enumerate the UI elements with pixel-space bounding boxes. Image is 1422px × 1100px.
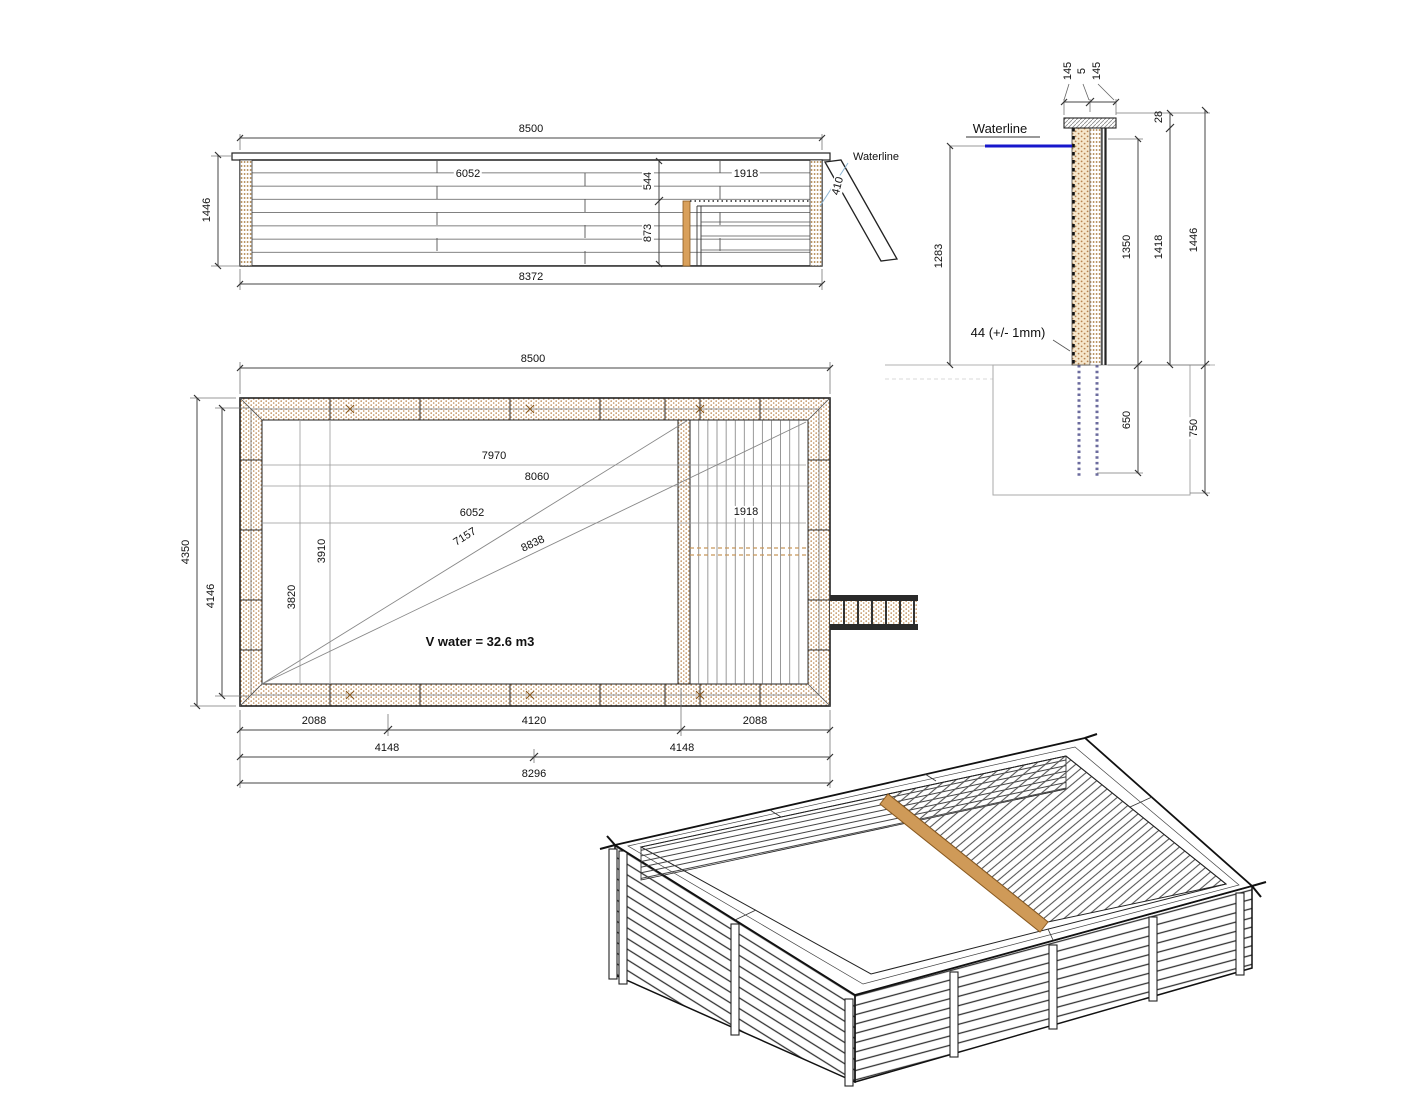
plan-view: [190, 362, 918, 788]
plan-dim-3910: 3910: [316, 537, 328, 565]
plan-dim-deck: 1918: [732, 506, 760, 518]
plan-volume-label: V water = 32.6 m3: [426, 635, 535, 649]
elevation-waterline-label: Waterline: [853, 151, 899, 163]
section-dim-inner-height: 1350: [1121, 233, 1133, 261]
plan-dim-2088-left: 2088: [302, 715, 326, 727]
elevation-view: [211, 134, 897, 290]
plan-dim-6052: 6052: [458, 507, 486, 519]
iso-view: [600, 734, 1266, 1086]
plan-dim-2088-right: 2088: [743, 715, 767, 727]
plan-dim-3820: 3820: [286, 583, 298, 611]
pool-technical-drawing: 8500 1446 8372 6052 544 1918 873 410 Wat…: [0, 0, 1422, 1100]
plan-dim-top: 8500: [521, 353, 545, 365]
elevation-dim-top: 8500: [519, 123, 543, 135]
plan-dim-4120: 4120: [522, 715, 546, 727]
plan-dim-8296: 8296: [522, 768, 546, 780]
section-dim-underground: 650: [1121, 409, 1133, 431]
elevation-dim-deck-length: 1918: [732, 168, 760, 180]
plan-dim-8060: 8060: [523, 471, 551, 483]
elevation-dim-inner-length: 6052: [454, 168, 482, 180]
drawing-linework: [0, 0, 1422, 1100]
section-dim-cap: 28: [1153, 111, 1165, 123]
plan-dim-4148-left: 4148: [375, 742, 399, 754]
plan-dim-width-outer: 4350: [180, 540, 192, 564]
elevation-dim-deck-drop: 544: [642, 170, 654, 192]
plan-dim-width-inner: 4146: [205, 584, 217, 608]
section-dim-wall-gap: 5: [1076, 68, 1088, 74]
plan-dim-4148-right: 4148: [670, 742, 694, 754]
section-dim-wall-inner: 145: [1091, 62, 1103, 80]
elevation-dim-bottom: 8372: [519, 271, 543, 283]
section-view: [885, 84, 1215, 495]
section-dim-wall-height: 1418: [1153, 233, 1165, 261]
section-dim-water-height: 1283: [933, 244, 945, 268]
section-dim-wall-outer: 145: [1062, 62, 1074, 80]
section-dim-total-height: 1446: [1188, 226, 1200, 254]
plan-dim-7970: 7970: [480, 450, 508, 462]
elevation-dim-below-deck: 873: [642, 222, 654, 244]
section-plank-note: 44 (+/- 1mm): [971, 326, 1046, 340]
elevation-dim-height: 1446: [201, 198, 213, 222]
section-waterline-label: Waterline: [973, 122, 1027, 136]
section-dim-foundation: 750: [1188, 417, 1200, 439]
